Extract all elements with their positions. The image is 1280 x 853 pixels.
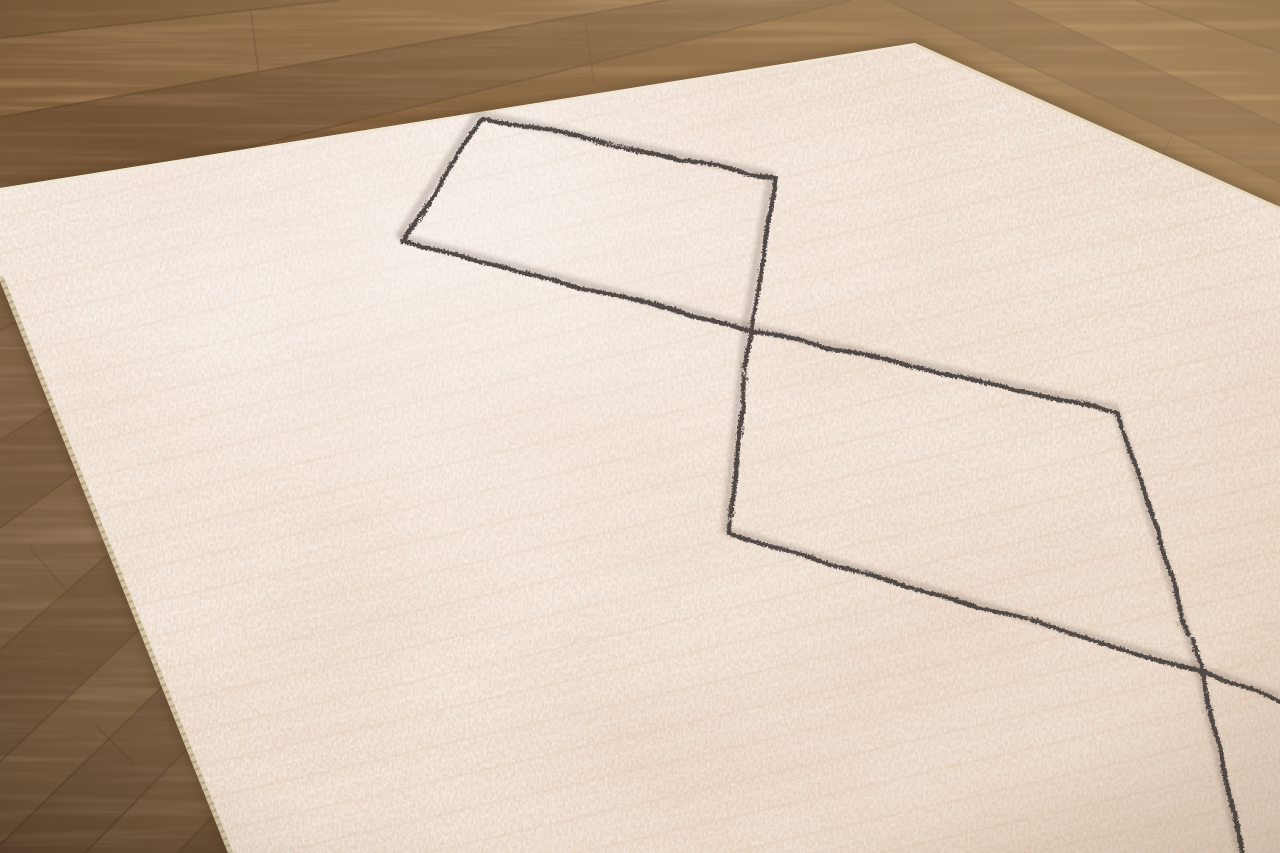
photo-vignette	[0, 0, 1280, 853]
rug-photo-svg	[0, 0, 1280, 853]
rug-photo	[0, 0, 1280, 853]
